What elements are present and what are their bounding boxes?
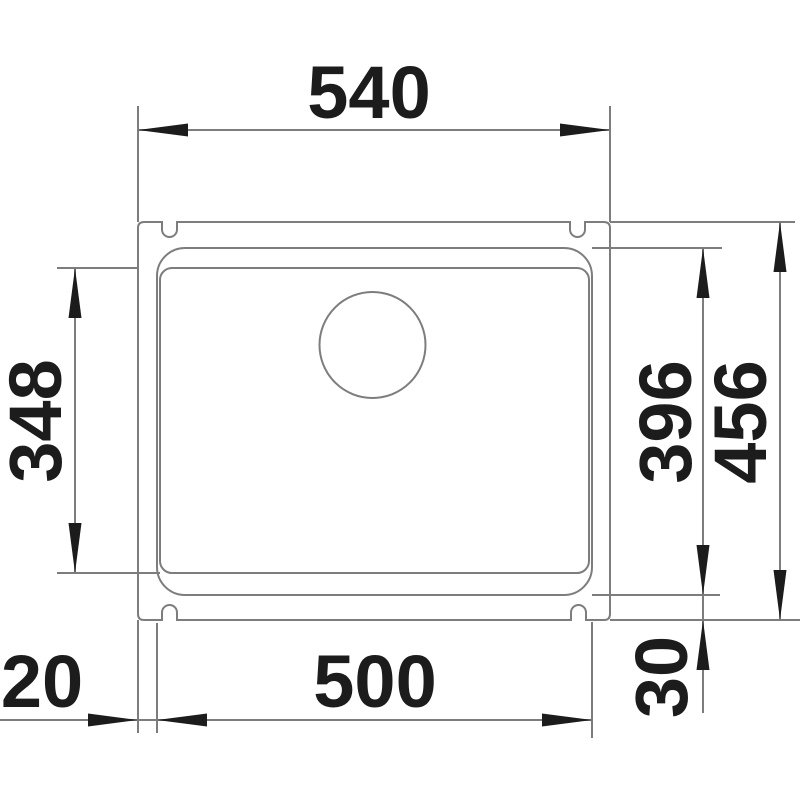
basin-rim-outline (157, 248, 592, 595)
arrowhead-540-right (560, 124, 610, 137)
dimension-label-basin-floor-depth: 348 (0, 359, 73, 482)
arrowhead-540-left (138, 124, 188, 137)
dimension-label-overall-depth: 456 (704, 360, 778, 483)
arrowhead-500-right (542, 714, 592, 727)
arrowhead-20-left (88, 714, 138, 727)
dimension-label-bottom-rim-offset: 30 (625, 636, 699, 718)
dimension-label-basin-depth: 396 (629, 360, 703, 483)
arrowhead-500-left (157, 714, 207, 727)
dimension-label-left-rim-offset: 20 (1, 645, 83, 719)
arrowhead-396-top (697, 248, 710, 298)
outer-rim-outline (138, 222, 610, 620)
arrowhead-456-bottom (774, 570, 787, 620)
arrowhead-396-bottom (697, 545, 710, 595)
basin-floor-outline (160, 268, 589, 573)
arrowhead-348-bottom (69, 523, 82, 573)
dimension-label-overall-width: 540 (307, 56, 430, 130)
technical-drawing-canvas: 540 348 396 456 20 500 30 (0, 0, 800, 800)
arrowhead-348-top (69, 268, 82, 318)
dimension-label-basin-width: 500 (313, 645, 436, 719)
drain-circle (320, 292, 426, 398)
arrowhead-456-top (774, 222, 787, 272)
